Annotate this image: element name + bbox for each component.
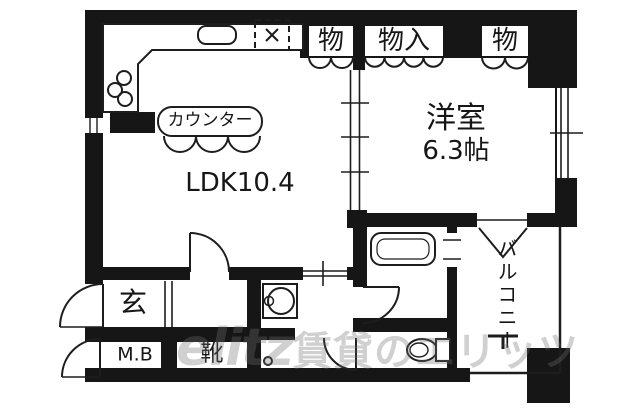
counter-scallops bbox=[164, 136, 260, 152]
label-ldk: LDK10.4 bbox=[185, 170, 294, 196]
bath-window-opening bbox=[447, 233, 457, 267]
wall-ldk-bottom-left bbox=[97, 267, 190, 280]
wall-left-upper bbox=[85, 10, 103, 118]
bathroom-door-arc bbox=[363, 287, 399, 323]
toilet-icon bbox=[407, 339, 450, 361]
wall-western-room-bottom bbox=[363, 213, 577, 227]
wall-kitchen-bar bbox=[110, 112, 155, 133]
sliding-partition bbox=[341, 70, 369, 210]
wall-ldk-bottom-right bbox=[229, 267, 303, 280]
label-entrance: 玄 bbox=[119, 289, 147, 317]
label-shoe-cabinet: 靴 bbox=[201, 343, 224, 366]
toilet-door-arc bbox=[324, 338, 356, 370]
label-storage-center: 物入 bbox=[378, 28, 430, 54]
column-block bbox=[527, 348, 570, 403]
wall-partition-post-top bbox=[353, 24, 365, 70]
storage-folding-door-left bbox=[309, 57, 353, 68]
floorplan-image: 物 物入 物 洋室 6.3帖 カウンター LDK10.4 玄 M.B 靴 バルコ… bbox=[0, 0, 640, 416]
bathtub-icon bbox=[371, 233, 435, 265]
label-western-room-size: 6.3帖 bbox=[422, 138, 489, 164]
wall-top bbox=[85, 10, 577, 24]
washing-machine-pan-icon bbox=[263, 284, 297, 318]
label-storage-right: 物 bbox=[492, 28, 518, 54]
entrance-door-arc bbox=[60, 284, 103, 327]
ldk-hall-door-arc bbox=[190, 233, 229, 272]
label-western-room: 洋室 bbox=[426, 104, 486, 134]
wall-washroom-nook bbox=[261, 328, 295, 340]
wall-mb-shoe-divider bbox=[161, 327, 177, 382]
wall-left-mid bbox=[85, 133, 103, 284]
storage-folding-door-right bbox=[482, 57, 528, 69]
kitchen-wall-niche bbox=[90, 118, 97, 133]
label-counter: カウンター bbox=[168, 113, 253, 130]
sliding-door-washroom bbox=[303, 261, 347, 286]
drain-icon bbox=[264, 357, 272, 365]
wall-bath-toilet-divider bbox=[353, 318, 457, 332]
wall-bathroom-left bbox=[353, 210, 367, 287]
floorplan-linework bbox=[0, 0, 640, 416]
entrance-step-line bbox=[165, 281, 172, 327]
storage-folding-door-center bbox=[365, 57, 443, 67]
label-balcony: バルコニー bbox=[492, 238, 521, 378]
label-meter-box: M.B bbox=[117, 346, 152, 365]
wall-bottom bbox=[85, 368, 470, 382]
label-storage-left: 物 bbox=[318, 28, 344, 54]
